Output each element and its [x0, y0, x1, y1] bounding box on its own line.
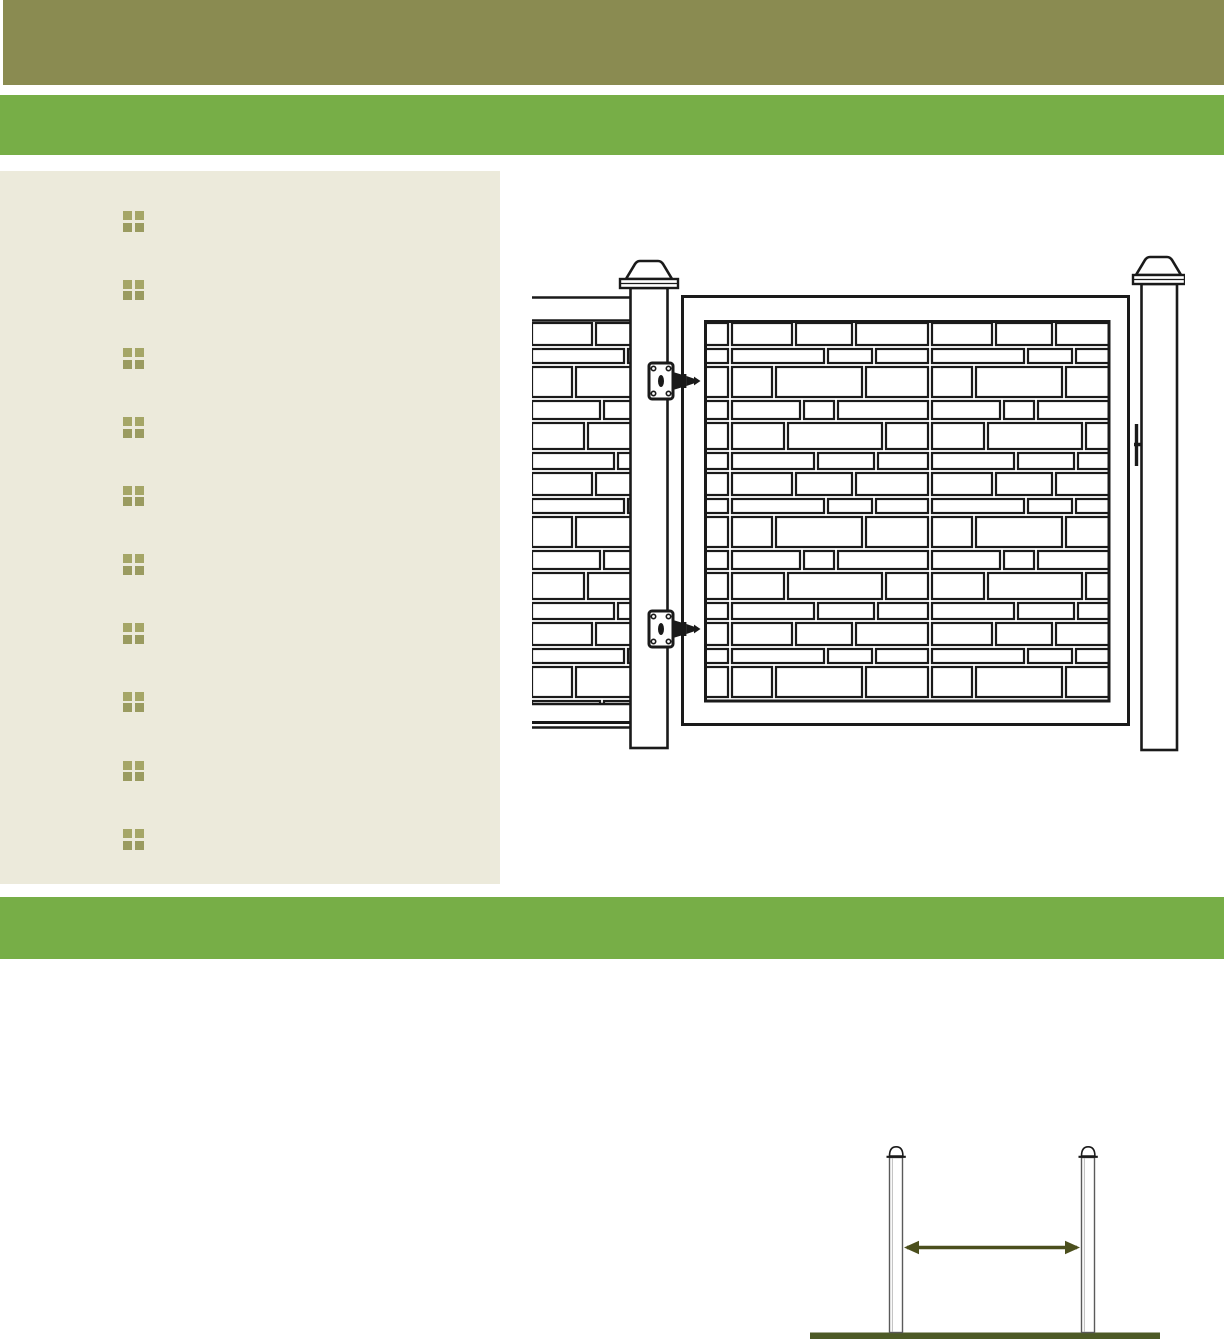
grid-bullet-icon: [123, 486, 144, 507]
left-fence-section: [532, 298, 632, 728]
post-cap-icon: [890, 1147, 903, 1156]
post-cap-icon: [1082, 1147, 1095, 1156]
bullet-list-panel: [0, 171, 500, 884]
grid-bullet-icon: [123, 692, 144, 713]
gate-illustration: [530, 255, 1185, 755]
right-gate-post: [1133, 257, 1185, 750]
grid-bullet-icon: [123, 348, 144, 369]
document-page: [0, 0, 1224, 1339]
title-band: [0, 95, 1224, 155]
post-spacing-illustration: [795, 1139, 1170, 1339]
spacing-left-post: [887, 1147, 906, 1333]
fence-stone-pattern: [532, 322, 632, 703]
post-cap-icon: [626, 261, 672, 279]
grid-bullet-icon: [123, 554, 144, 575]
ground-bar: [810, 1333, 1160, 1339]
grid-bullet-icon: [123, 417, 144, 438]
grid-bullet-icon: [123, 623, 144, 644]
grid-bullet-icon: [123, 761, 144, 782]
grid-bullet-icon: [123, 280, 144, 301]
gate-stone-panel: [706, 322, 1110, 702]
bullet-list: [123, 211, 144, 850]
grid-bullet-icon: [123, 829, 144, 850]
spacing-arrow-icon: [904, 1241, 1080, 1254]
header-banner: [3, 0, 1224, 85]
grid-bullet-icon: [123, 211, 144, 232]
spacing-right-post: [1079, 1147, 1098, 1333]
post-cap-icon: [1136, 257, 1181, 275]
section-band: [0, 897, 1224, 959]
gate-frame: [683, 297, 1129, 725]
